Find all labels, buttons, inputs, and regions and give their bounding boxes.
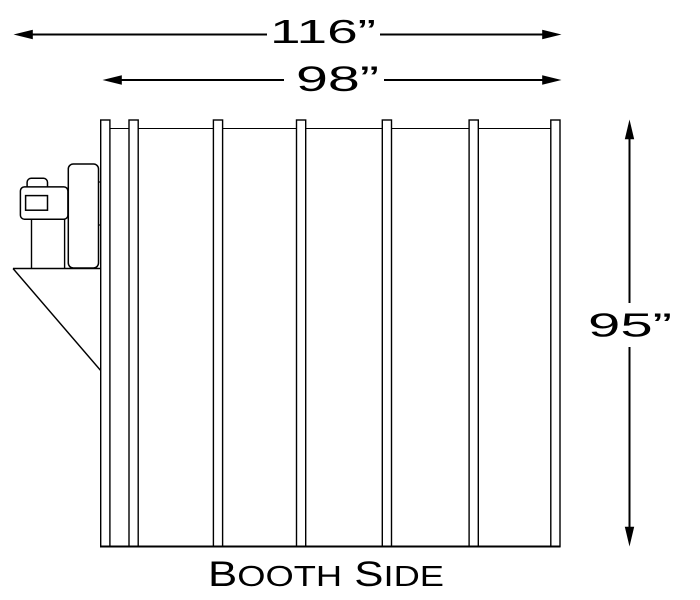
svg-text:95”: 95” [588,307,672,344]
svg-text:BOOTH SIDE: BOOTH SIDE [208,555,444,594]
svg-text:116”: 116” [270,13,376,50]
svg-text:98”: 98” [296,60,379,99]
